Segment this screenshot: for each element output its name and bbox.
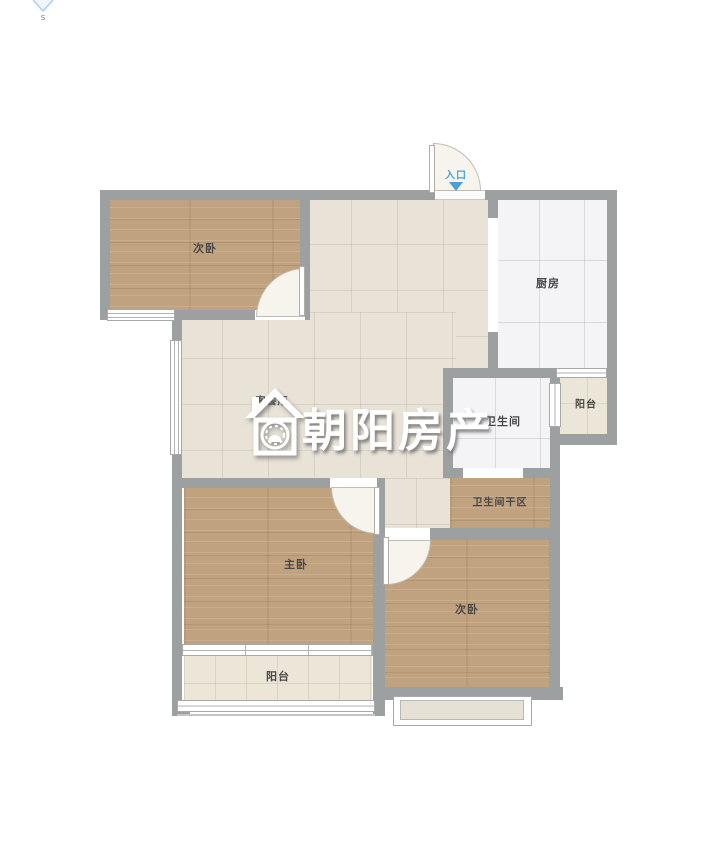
bedroom1-window	[107, 309, 175, 321]
entrance-arrow-icon	[449, 182, 463, 191]
bathroom-window	[549, 383, 561, 427]
compass-south-label: s	[41, 13, 46, 22]
watermark-house-icon	[243, 384, 307, 458]
wall-top-left	[100, 190, 435, 200]
wall-left-upper	[100, 190, 110, 320]
compass-south-icon: s	[30, 0, 56, 22]
room-label-kitchen: 厨房	[536, 275, 560, 291]
kitchen-door-opening	[488, 218, 498, 332]
room-label-bathroom-dry-area: 卫生间干区	[473, 494, 528, 509]
floor-plan: 次卧 厨房 阳台 卫生间 卫生间干区 客餐厅 主卧 次卧 阳台 入口 朝阳房产 …	[0, 0, 720, 851]
bathroom-door-opening	[463, 468, 523, 478]
bedroom1-door-leaf	[299, 266, 305, 316]
bedroom2-door-leaf	[383, 537, 389, 585]
bedroom2-bay-window-inner	[400, 700, 524, 720]
room-label-bedroom-top-left: 次卧	[193, 240, 217, 256]
bedroom2-door-opening	[385, 528, 430, 540]
room-label-bedroom-bottom-right: 次卧	[455, 601, 479, 617]
entrance-threshold	[435, 190, 485, 200]
room-label-master-bedroom: 主卧	[284, 556, 308, 572]
balcony-bottom-window	[177, 700, 375, 712]
watermark-brand-text: 朝阳房产	[302, 394, 494, 459]
master-door-leaf	[374, 487, 380, 535]
balcony-right-window	[556, 368, 607, 378]
wall-top-right	[485, 190, 617, 200]
room-label-balcony-right: 阳台	[575, 396, 597, 411]
balcony-bottom-sill-line	[177, 714, 375, 716]
master-balcony-sliding-door	[182, 644, 373, 656]
living-room-window	[170, 340, 182, 455]
wall-balcony-right-bottom	[550, 434, 617, 445]
entrance-door-leaf	[429, 145, 435, 193]
wall-right-outer	[607, 190, 617, 445]
room-label-balcony-bottom: 阳台	[266, 668, 290, 684]
entrance-label: 入口	[445, 167, 467, 182]
